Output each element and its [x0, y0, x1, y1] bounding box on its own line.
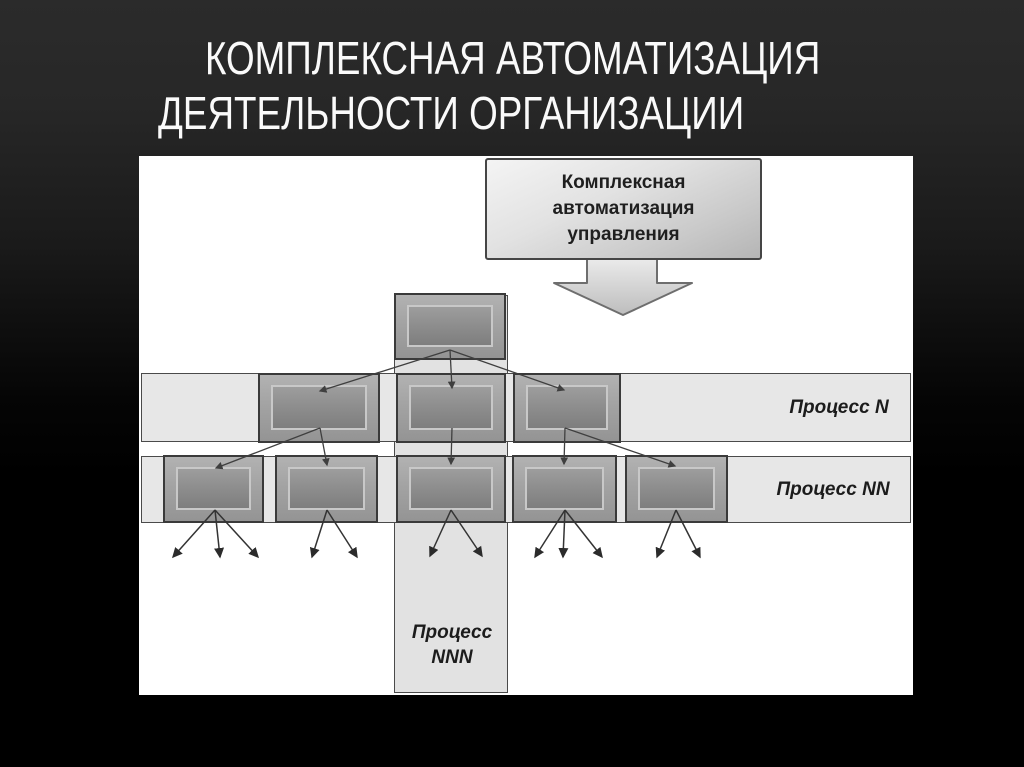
block-down-arrow-icon [554, 257, 692, 315]
system-box-nn3 [396, 455, 506, 523]
system-box-n1-inner [271, 385, 367, 430]
slide-title-line1: КОМПЛЕКСНАЯ АВТОМАТИЗАЦИЯ [205, 31, 820, 85]
system-box-nn4 [512, 455, 617, 523]
system-box-n2-inner [409, 385, 493, 430]
system-box-n3-inner [526, 385, 608, 430]
system-box-n2 [396, 373, 506, 443]
system-box-nn2-inner [288, 467, 365, 510]
system-box-nn2 [275, 455, 378, 523]
slide-title-line2: ДЕЯТЕЛЬНОСТИ ОРГАНИЗАЦИИ [158, 86, 744, 140]
diagram-panel: Процесс N Процесс NN Процесс NNN [139, 156, 913, 695]
system-box-nn3-inner [409, 467, 493, 510]
process-nn-label: Процесс NN [753, 479, 913, 501]
system-box-nn1 [163, 455, 264, 523]
process-n-label: Процесс N [759, 397, 919, 419]
process-nnn-label: Процесс NNN [402, 620, 502, 670]
management-automation-callout: Комплексная автоматизация управления [485, 158, 762, 260]
system-box-root-inner [407, 305, 493, 347]
callout-text: Комплексная автоматизация управления [514, 170, 734, 248]
slide-canvas: КОМПЛЕКСНАЯ АВТОМАТИЗАЦИЯ ДЕЯТЕЛЬНОСТИ О… [0, 0, 1024, 767]
system-box-nn4-inner [525, 467, 604, 510]
system-box-root [394, 293, 506, 360]
system-box-n1 [258, 373, 380, 443]
system-box-nn5-inner [638, 467, 715, 510]
system-box-nn5 [625, 455, 728, 523]
system-box-nn1-inner [176, 467, 251, 510]
system-box-n3 [513, 373, 621, 443]
